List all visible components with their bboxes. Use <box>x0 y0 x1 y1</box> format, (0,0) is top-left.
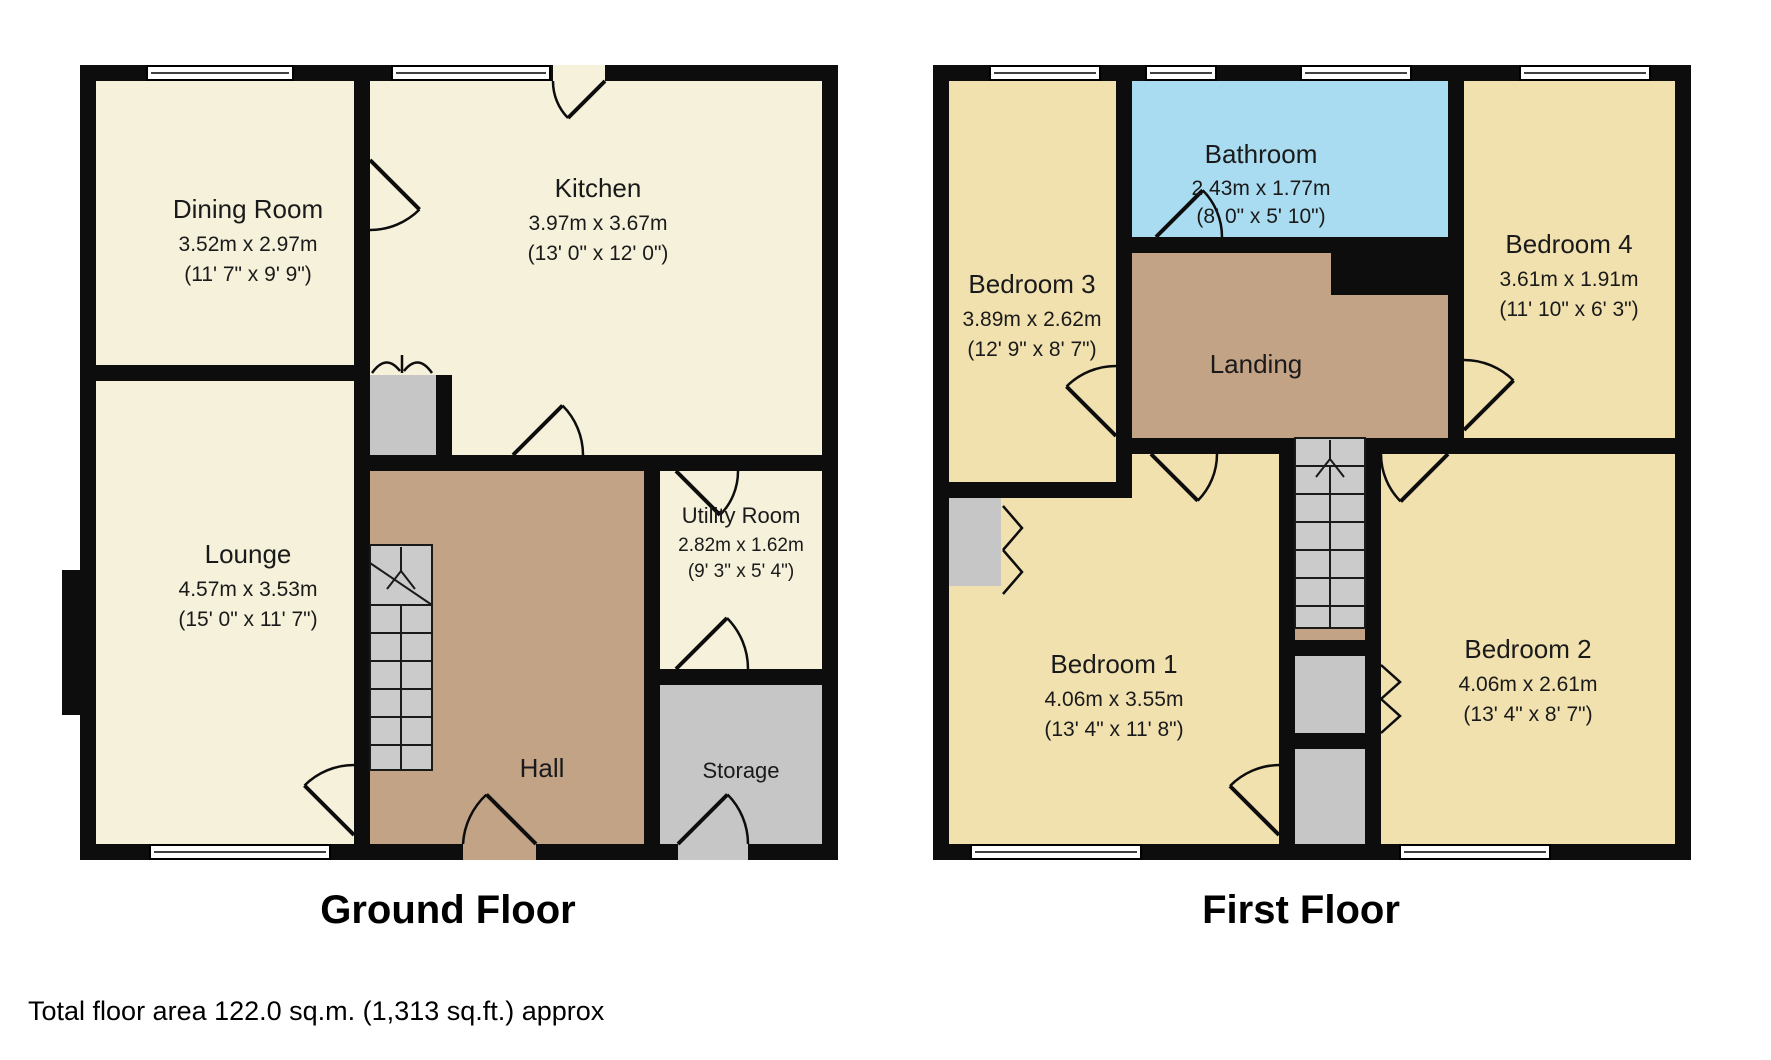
bedroom3-metric: 3.89m x 2.62m <box>963 308 1102 331</box>
bathroom-metric: 2.43m x 1.77m <box>1192 177 1331 200</box>
bedroom2-imperial: (13' 4" x 8' 7") <box>1463 703 1592 726</box>
kitchen-label: Kitchen <box>555 173 642 203</box>
utility-metric: 2.82m x 1.62m <box>678 535 804 556</box>
floorplan-page: Dining Room 3.52m x 2.97m (11' 7" x 9' 9… <box>0 0 1771 1060</box>
lounge-label: Lounge <box>205 539 292 569</box>
dining-room-metric: 3.52m x 2.97m <box>179 233 318 256</box>
bedroom4-metric: 3.61m x 1.91m <box>1500 268 1639 291</box>
lounge-metric: 4.57m x 3.53m <box>179 578 318 601</box>
landing-label: Landing <box>1210 349 1303 379</box>
bedroom1-closet <box>949 498 1001 586</box>
bedroom4-label: Bedroom 4 <box>1505 229 1632 259</box>
understairs-cupboard <box>1295 749 1365 844</box>
ground-floor-caption: Ground Floor <box>58 888 838 933</box>
utility-label: Utility Room <box>682 503 801 528</box>
landing-cupboard <box>1295 656 1365 733</box>
bedroom1-imperial: (13' 4" x 11' 8") <box>1044 718 1183 741</box>
hall-label: Hall <box>520 753 565 783</box>
ground-staircase <box>370 545 432 770</box>
bathroom-label: Bathroom <box>1205 139 1318 169</box>
back-door-opening <box>553 65 605 81</box>
utility-imperial: (9' 3" x 5' 4") <box>688 561 794 582</box>
stair-landing-strip <box>1295 628 1365 640</box>
first-staircase <box>1295 438 1365 628</box>
first-floor-caption: First Floor <box>911 888 1691 933</box>
bedroom3-imperial: (12' 9" x 8' 7") <box>967 338 1096 361</box>
storage-label: Storage <box>702 758 779 783</box>
ground-floor-plan: Dining Room 3.52m x 2.97m (11' 7" x 9' 9… <box>58 65 838 860</box>
front-door-opening <box>463 844 536 860</box>
chimney-breast <box>62 570 80 715</box>
dining-room-imperial: (11' 7" x 9' 9") <box>184 263 312 286</box>
room-bedroom4 <box>1464 81 1675 438</box>
bathroom-imperial: (8' 0" x 5' 10") <box>1196 205 1325 228</box>
lounge-imperial: (15' 0" x 11' 7") <box>178 608 317 631</box>
total-floor-area: Total floor area 122.0 sq.m. (1,313 sq.f… <box>28 996 604 1027</box>
first-floor-plan: Bedroom 3 3.89m x 2.62m (12' 9" x 8' 7")… <box>911 65 1691 860</box>
kitchen-metric: 3.97m x 3.67m <box>529 212 668 235</box>
bedroom2-metric: 4.06m x 2.61m <box>1459 673 1598 696</box>
bedroom1-label: Bedroom 1 <box>1050 649 1177 679</box>
bedroom4-imperial: (11' 10" x 6' 3") <box>1499 298 1638 321</box>
room-landing-right <box>1331 295 1448 438</box>
dining-room-label: Dining Room <box>173 194 323 224</box>
bedroom3-label: Bedroom 3 <box>968 269 1095 299</box>
bedroom2-label: Bedroom 2 <box>1464 634 1591 664</box>
storage-door-opening <box>678 844 748 860</box>
bedroom1-metric: 4.06m x 3.55m <box>1045 688 1184 711</box>
kitchen-imperial: (13' 0" x 12' 0") <box>528 242 669 265</box>
room-landing <box>1132 253 1331 438</box>
